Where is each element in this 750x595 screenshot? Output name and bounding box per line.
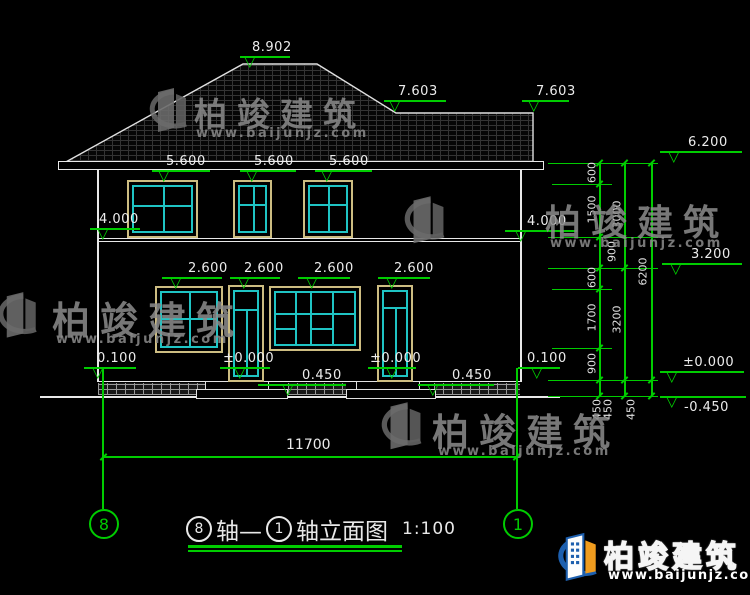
title-underline-thick [188,545,402,548]
right-wall [520,169,522,382]
level-triangle-icon: ▽ [666,369,678,384]
window-upper-2-glass [238,185,267,233]
axis-bubble-1: 1 [503,509,533,539]
dim-value: 450 [625,388,638,432]
level-value: 6.200 [688,135,728,150]
dim-value: 1700 [586,296,599,340]
level-triangle-icon: ▽ [427,382,439,397]
axis-bubble-1-label: 1 [513,515,523,534]
level-value: 0.450 [452,368,492,383]
window-upper-1-glass [132,185,193,233]
level-triangle-icon: ▽ [389,98,401,113]
title-circled-8: 8 [186,516,212,542]
level-triangle-icon: ▽ [306,275,318,290]
ext-line [552,289,612,290]
level-triangle-icon: ▽ [670,261,682,276]
ground-line [40,396,560,398]
ext-line [548,380,658,381]
dim-value: 600 [586,256,599,300]
level-triangle-icon: ▽ [515,228,527,243]
eave-band [58,161,544,170]
level-value: 0.100 [527,351,567,366]
level-value: 7.603 [536,84,576,99]
level-value: 2.600 [244,261,284,276]
level-value: 7.603 [398,84,438,99]
level-value: 5.600 [254,154,294,169]
level-triangle-icon: ▽ [234,365,246,380]
window-lower-2 [269,286,361,351]
watermark-logo-icon [388,192,454,254]
level-triangle-icon: ▽ [386,275,398,290]
level-value: 2.600 [188,261,228,276]
dim-value: 3200 [611,298,624,342]
brand-logo-icon [546,530,602,590]
title-underline-thin [188,550,402,552]
axis-bubble-8: 8 [89,509,119,539]
ext-line [552,348,612,349]
brand-url: www.baijunjz.com [608,568,750,583]
level-value: ±0.000 [223,351,274,366]
axis-line-left [102,368,104,509]
plinth-hatch-left [98,383,205,395]
level-value: 2.600 [394,261,434,276]
dim-value: 6200 [637,250,650,294]
watermark-logo-icon [370,398,426,460]
ext-line [552,184,612,185]
level-value: 8.902 [252,40,292,55]
watermark-url: www.baijunjz.com [196,126,369,141]
dim-value: 900 [586,342,599,386]
level-triangle-icon: ▽ [386,365,398,380]
level-triangle-icon: ▽ [668,149,680,164]
level-value: ±0.000 [370,351,421,366]
watermark-logo-icon [0,288,42,348]
level-value: 2.600 [314,261,354,276]
level-value: 5.600 [166,154,206,169]
level-value: 0.450 [302,368,342,383]
brand-logo: 柏竣建筑 www.baijunjz.com [546,530,750,592]
title-scale: 1:100 [402,519,456,539]
second-floor-line-2 [97,241,522,242]
watermark-url: www.baijunjz.com [438,444,611,459]
window-lower-2-glass [274,291,356,346]
ext-line [548,163,658,164]
drawing-title: 8 轴— 1 轴立面图 1:100 [186,512,456,546]
level-value: ±0.000 [683,355,734,370]
level-triangle-icon: ▽ [246,168,258,183]
level-value: 0.100 [97,351,137,366]
level-triangle-icon: ▽ [97,226,109,241]
level-value: -0.450 [684,400,729,415]
watermark-logo-icon [140,84,190,142]
level-value: 4.000 [99,212,139,227]
level-triangle-icon: ▽ [282,382,294,397]
window-upper-3-glass [308,185,348,233]
total-dim-value: 11700 [286,437,331,453]
level-triangle-icon: ▽ [238,275,250,290]
level-triangle-icon: ▽ [321,168,333,183]
level-triangle-icon: ▽ [531,365,543,380]
level-triangle-icon: ▽ [528,98,540,113]
second-floor-line [97,238,522,239]
level-triangle-icon: ▽ [244,54,256,69]
title-circled-1: 1 [266,516,292,542]
level-value: 5.600 [329,154,369,169]
level-triangle-icon: ▽ [170,275,182,290]
door1-step-lower [196,389,288,399]
title-text: 轴立面图 [296,512,388,546]
window-upper-2 [233,180,272,238]
watermark-url: www.baijunjz.com [550,236,723,251]
window-upper-3 [303,180,353,238]
level-triangle-icon: ▽ [666,394,678,409]
watermark-url: www.baijunjz.com [56,332,229,347]
elevation-drawing-canvas: ▽ 8.902 ▽ 7.603 ▽ 7.603 ▽ 5.600 ▽ 5.600 … [0,0,750,595]
level-triangle-icon: ▽ [158,168,170,183]
axis-bubble-8-label: 8 [99,515,109,534]
title-axis-sep: 轴— [216,512,262,546]
